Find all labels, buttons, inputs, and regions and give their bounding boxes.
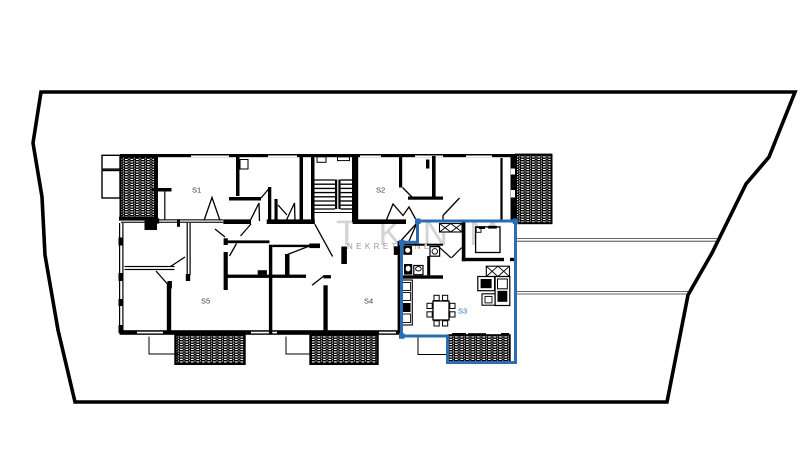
svg-text:S2: S2 bbox=[376, 186, 385, 195]
svg-text:S3: S3 bbox=[458, 307, 467, 316]
svg-text:S1: S1 bbox=[192, 186, 201, 195]
svg-text:S4: S4 bbox=[364, 297, 373, 306]
svg-text:S5: S5 bbox=[201, 297, 210, 306]
svg-text:NEKRETNINE: NEKRETNINE bbox=[347, 242, 433, 251]
